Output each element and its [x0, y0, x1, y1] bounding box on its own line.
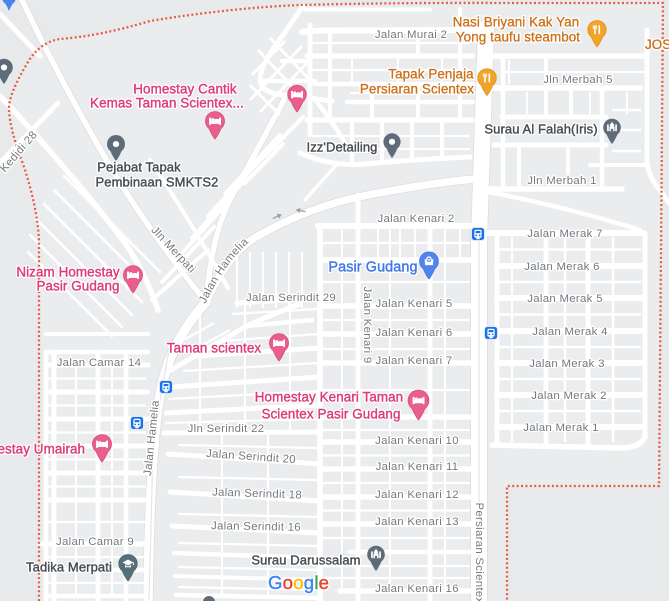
svg-text:Homestay Cantik: Homestay Cantik — [133, 82, 237, 97]
svg-text:Nizam Homestay: Nizam Homestay — [16, 265, 120, 280]
svg-text:Jln Merbah 1: Jln Merbah 1 — [527, 175, 596, 187]
svg-text:Izz'Detailing: Izz'Detailing — [307, 140, 378, 155]
svg-text:Persiaran Scientex: Persiaran Scientex — [473, 502, 485, 601]
svg-text:Tapak Penjaja: Tapak Penjaja — [388, 67, 474, 82]
svg-text:Jalan Kenari 7: Jalan Kenari 7 — [375, 355, 452, 367]
svg-text:Jalan Kenari 16: Jalan Kenari 16 — [375, 583, 459, 595]
svg-text:Jalan Serindit 29: Jalan Serindit 29 — [246, 292, 336, 304]
svg-text:Jalan Camar 14: Jalan Camar 14 — [57, 357, 142, 369]
svg-text:Jln Merbah 5: Jln Merbah 5 — [543, 74, 612, 86]
svg-text:Jalan Serindit 16: Jalan Serindit 16 — [211, 520, 301, 534]
svg-text:Jalan Kenari 11: Jalan Kenari 11 — [376, 461, 459, 473]
svg-text:Homestay Umairah: Homestay Umairah — [0, 442, 85, 457]
svg-text:Jln Serindit 22: Jln Serindit 22 — [188, 423, 265, 435]
svg-text:Homestay Kenari Taman: Homestay Kenari Taman — [255, 390, 403, 405]
svg-text:Jalan Kenari 2: Jalan Kenari 2 — [377, 213, 454, 225]
svg-text:Yong taufu steambot: Yong taufu steambot — [456, 30, 580, 45]
svg-text:Jalan Camar 9: Jalan Camar 9 — [56, 536, 134, 548]
svg-text:Jalan Kenari 12: Jalan Kenari 12 — [375, 489, 459, 501]
svg-text:Pembinaan SMKTS2: Pembinaan SMKTS2 — [96, 175, 219, 190]
svg-text:Jalan Kenari 5: Jalan Kenari 5 — [375, 298, 452, 310]
svg-text:Tadika Merpati: Tadika Merpati — [26, 560, 112, 575]
svg-text:Jalan Merak 6: Jalan Merak 6 — [524, 261, 599, 273]
svg-text:JOSC: JOSC — [645, 37, 669, 52]
svg-text:Pejabat Tapak: Pejabat Tapak — [97, 160, 181, 175]
svg-text:Pasir Gudang: Pasir Gudang — [36, 279, 119, 294]
svg-text:Jalan Murai 2: Jalan Murai 2 — [375, 29, 447, 41]
svg-text:Scientex Pasir Gudang: Scientex Pasir Gudang — [261, 407, 400, 422]
svg-text:Jalan Kenari 13: Jalan Kenari 13 — [375, 516, 459, 528]
svg-text:Jalan Merak 4: Jalan Merak 4 — [532, 326, 607, 338]
svg-text:Surau Al Falah(Iris): Surau Al Falah(Iris) — [484, 122, 597, 137]
svg-text:Taman scientex: Taman scientex — [167, 341, 262, 356]
svg-text:Jalan Kenari 6: Jalan Kenari 6 — [375, 327, 452, 339]
svg-text:Nasi Briyani Kak Yan: Nasi Briyani Kak Yan — [453, 15, 580, 30]
svg-text:Persiaran Scientex: Persiaran Scientex — [360, 82, 474, 97]
svg-text:Jalan Kenari 9: Jalan Kenari 9 — [361, 286, 373, 363]
svg-text:Surau Darussalam: Surau Darussalam — [251, 553, 360, 568]
svg-text:Jalan Merak 1: Jalan Merak 1 — [523, 422, 598, 434]
svg-text:Jalan Merak 3: Jalan Merak 3 — [529, 358, 604, 370]
svg-text:Jalan Merak 5: Jalan Merak 5 — [527, 293, 602, 305]
svg-text:Pasir Gudang: Pasir Gudang — [328, 260, 417, 276]
svg-text:Google: Google — [268, 572, 329, 593]
svg-text:Jalan Merak 7: Jalan Merak 7 — [527, 228, 602, 240]
svg-text:Kemas Taman Scientex...: Kemas Taman Scientex... — [90, 96, 244, 111]
svg-text:Jalan Merak 2: Jalan Merak 2 — [531, 390, 606, 402]
svg-text:Jalan Kenari 10: Jalan Kenari 10 — [375, 435, 459, 447]
